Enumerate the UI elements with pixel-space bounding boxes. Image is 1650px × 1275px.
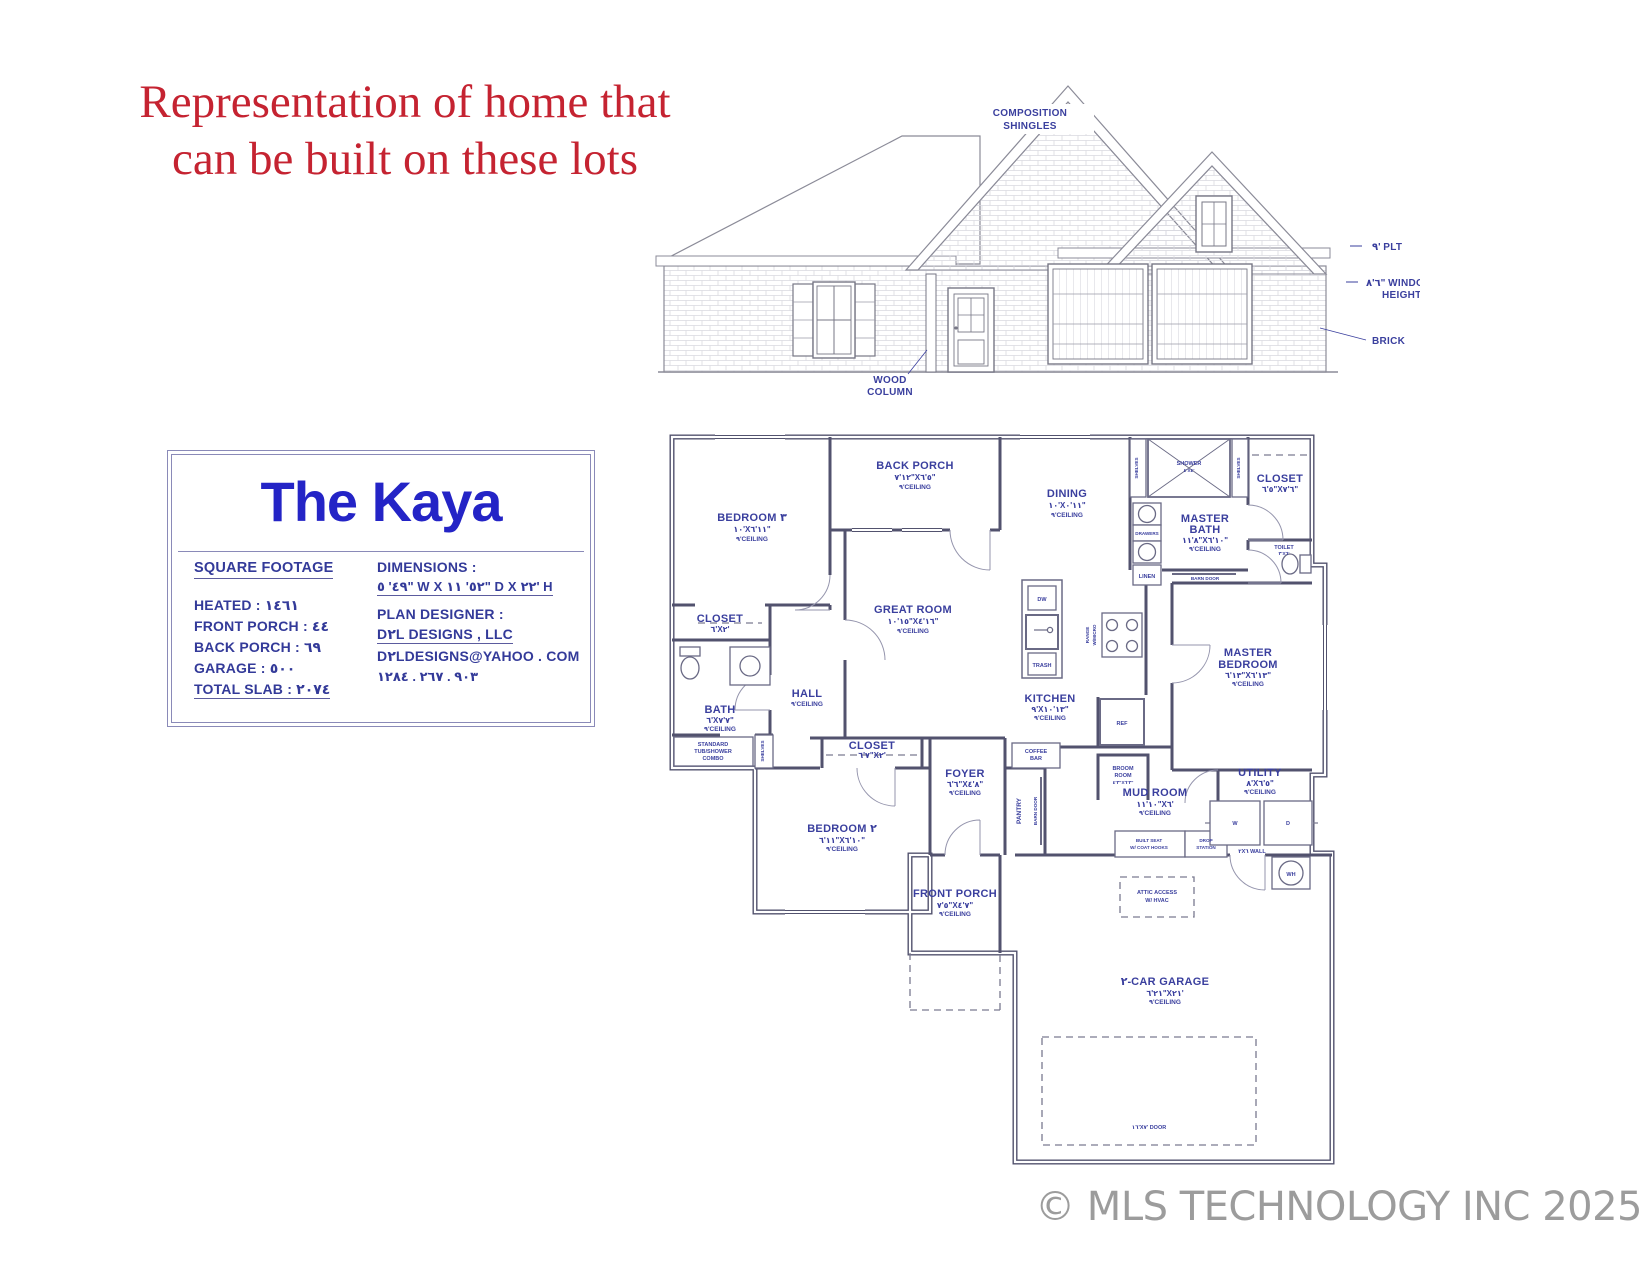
dashed-features bbox=[698, 455, 1318, 1145]
kitchen-label: KITCHEN bbox=[1025, 693, 1076, 705]
utility-label: UTILITY bbox=[1238, 767, 1282, 779]
svg-text:٧'٦"X٢': ٧'٦"X٢' bbox=[858, 751, 886, 760]
wood-column-label2: COLUMN bbox=[867, 387, 913, 398]
svg-text:COMBO: COMBO bbox=[702, 756, 724, 762]
svg-text:٩'CEILING: ٩'CEILING bbox=[939, 911, 971, 918]
plan-designer-heading: PLAN DESIGNER : bbox=[377, 606, 587, 622]
svg-text:٢'٤"X٢'٦": ٢'٤"X٢'٦" bbox=[1113, 780, 1134, 785]
wood-column-label: WOOD bbox=[873, 375, 906, 386]
hall-label: HALL bbox=[792, 688, 823, 700]
svg-text:٥'٧"X٧'٤": ٥'٧"X٧'٤" bbox=[937, 901, 974, 910]
svg-text:٩'CEILING: ٩'CEILING bbox=[826, 846, 858, 853]
plan-title-block: The Kaya SQUARE FOOTAGE HEATED : ١٤٦١ FR… bbox=[167, 450, 595, 727]
svg-text:٩'CEILING: ٩'CEILING bbox=[899, 484, 931, 491]
svg-text:٦'٦"X٨'٤": ٦'٦"X٨'٤" bbox=[947, 780, 984, 789]
svg-text:٩'X١٣'١٠": ٩'X١٣'١٠" bbox=[1031, 705, 1069, 714]
bedroom2-label: BEDROOM ٢ bbox=[807, 823, 877, 835]
svg-text:٩'CEILING: ٩'CEILING bbox=[1139, 810, 1171, 817]
tub-label: STANDARD bbox=[698, 742, 728, 748]
svg-text:٩'CEILING: ٩'CEILING bbox=[1189, 546, 1221, 553]
master-closet-label: CLOSET bbox=[1257, 473, 1303, 485]
dryer-label: D bbox=[1286, 821, 1290, 827]
svg-text:٩'CEILING: ٩'CEILING bbox=[1149, 999, 1181, 1006]
svg-text:٩'CEILING: ٩'CEILING bbox=[704, 726, 736, 733]
bath-label: BATH bbox=[705, 704, 736, 716]
svg-text:١٠'X١١'٠": ١٠'X١١'٠" bbox=[1048, 501, 1086, 510]
svg-text:١٥'١٠"X١٦'٤": ١٥'١٠"X١٦'٤" bbox=[888, 617, 939, 626]
svg-text:BEDROOM: BEDROOM bbox=[1218, 659, 1278, 671]
master-bedroom-label: MASTER bbox=[1224, 647, 1272, 659]
dishwasher-label: DW bbox=[1037, 597, 1047, 603]
great-room-label: GREAT ROOM bbox=[874, 604, 952, 616]
shower-label: SHOWER bbox=[1177, 461, 1202, 467]
plan-designer-email: D٢LDESIGNS@YAHOO . COM bbox=[377, 648, 587, 665]
svg-text:TUB/SHOWER: TUB/SHOWER bbox=[694, 749, 732, 755]
svg-text:٤'X٤': ٤'X٤' bbox=[1184, 468, 1195, 473]
svg-text:١١'٦"X١٠'٦": ١١'٦"X١٠'٦" bbox=[819, 836, 865, 845]
dimensions-column: DIMENSIONS : ٤٩' ٥" W X ٥٢' ١١" D X ٢٢' … bbox=[377, 559, 587, 685]
svg-text:١٣'٦"X١٣'٦": ١٣'٦"X١٣'٦" bbox=[1225, 671, 1271, 680]
front-porch-label: FRONT PORCH bbox=[913, 888, 997, 900]
front-porch-sqft: FRONT PORCH : ٤٤ bbox=[194, 618, 374, 635]
garage-door-label: ١٦'X٧' DOOR bbox=[1132, 1125, 1166, 1131]
svg-text:ROOM: ROOM bbox=[1114, 773, 1132, 779]
heated-sqft: HEATED : ١٤٦١ bbox=[194, 597, 374, 614]
floor-plan-drawing: BEDROOM ٣ ١٠'X١١'٦" ٩'CEILING BACK PORCH… bbox=[660, 425, 1340, 1165]
svg-text:W/ HVAC: W/ HVAC bbox=[1145, 898, 1168, 904]
trash-label: TRASH bbox=[1033, 663, 1052, 669]
svg-text:BAR: BAR bbox=[1030, 756, 1042, 762]
shelves-label-2: SHELVES bbox=[1134, 457, 1139, 478]
total-slab-sqft: TOTAL SLAB : ٢٠٧٤ bbox=[194, 681, 330, 699]
back-porch-label: BACK PORCH bbox=[876, 460, 954, 472]
brick-label: BRICK bbox=[1372, 336, 1406, 347]
svg-text:٩'CEILING: ٩'CEILING bbox=[1244, 789, 1276, 796]
range-label: RANGE bbox=[1085, 627, 1090, 644]
house-elevation-drawing: COMPOSITION SHINGLES WOOD COLUMN ٩' PLT … bbox=[650, 78, 1420, 408]
washer-label: W bbox=[1232, 821, 1238, 827]
garage-label: ٢-CAR GARAGE bbox=[1121, 976, 1210, 988]
attic-access-label: ATTIC ACCESS bbox=[1137, 890, 1177, 896]
dining-label: DINING bbox=[1047, 488, 1087, 500]
plan-designer-phone: ٩٠٣ . ٢٦٧ . ١٢٨٤ bbox=[377, 669, 587, 685]
dimensions-heading: DIMENSIONS : bbox=[377, 559, 587, 575]
svg-text:٦'X٧'٧": ٦'X٧'٧" bbox=[706, 716, 734, 725]
square-footage-column: SQUARE FOOTAGE HEATED : ١٤٦١ FRONT PORCH… bbox=[194, 559, 374, 699]
plan-name: The Kaya bbox=[172, 469, 590, 534]
dimensions-value: ٤٩' ٥" W X ٥٢' ١١" D X ٢٢' H bbox=[377, 579, 553, 596]
svg-text:٨'X٥'٦": ٨'X٥'٦" bbox=[1246, 779, 1274, 788]
svg-text:٩'CEILING: ٩'CEILING bbox=[1232, 681, 1264, 688]
drop-station-label: DROP bbox=[1199, 838, 1212, 843]
svg-text:STATION: STATION bbox=[1196, 845, 1216, 850]
window-height-label: ٦'٨" WINDOW bbox=[1366, 278, 1420, 289]
water-heater-label: WH bbox=[1286, 872, 1295, 878]
svg-text:٩'CEILING: ٩'CEILING bbox=[897, 628, 929, 635]
svg-text:١٠'١١"X٦': ١٠'١١"X٦' bbox=[1136, 800, 1173, 809]
shelves-label: SHELVES bbox=[760, 740, 765, 761]
linen-label: LINEN bbox=[1139, 574, 1156, 580]
mls-watermark: © MLS TECHNOLOGY INC 2025 bbox=[822, 1184, 1642, 1230]
svg-text:٥'٦"X٦'٧": ٥'٦"X٦'٧" bbox=[1262, 485, 1299, 494]
garage-sqft: GARAGE : ٥٠٠ bbox=[194, 660, 374, 677]
plan-title-block-inner: The Kaya SQUARE FOOTAGE HEATED : ١٤٦١ FR… bbox=[171, 454, 591, 723]
svg-text:٩'CEILING: ٩'CEILING bbox=[791, 701, 823, 708]
coffee-bar-label: COFFEE bbox=[1025, 749, 1048, 755]
composition-shingles-label2: SHINGLES bbox=[1003, 121, 1057, 132]
svg-text:٩'CEILING: ٩'CEILING bbox=[949, 790, 981, 797]
2x6-wall-label: ٢X٦ WALL bbox=[1238, 849, 1266, 855]
pantry-label: PANTRY bbox=[1016, 797, 1023, 824]
foyer-label: FOYER bbox=[945, 768, 984, 780]
shelves-label-3: SHELVES bbox=[1236, 457, 1241, 478]
back-porch-sqft: BACK PORCH : ٦٩ bbox=[194, 639, 374, 656]
svg-text:٨'١١"X١٠'٦": ٨'١١"X١٠'٦" bbox=[1182, 536, 1228, 545]
front-window bbox=[793, 282, 875, 358]
closet-bed3-label: CLOSET bbox=[697, 613, 743, 625]
fixtures bbox=[674, 439, 1312, 889]
svg-text:BATH: BATH bbox=[1190, 524, 1221, 536]
composition-shingles-label: COMPOSITION bbox=[993, 108, 1067, 119]
svg-text:W/ COAT HOOKS: W/ COAT HOOKS bbox=[1130, 845, 1168, 850]
broom-room-label: BROOM bbox=[1112, 766, 1134, 772]
barn-door-label: BARN DOOR bbox=[1191, 576, 1220, 581]
fixture-labels: STANDARD TUB/SHOWER COMBO SHELVES SHELVE… bbox=[694, 457, 1295, 1131]
svg-text:٣'X٦': ٣'X٦' bbox=[1279, 551, 1290, 556]
mud-room-label: MUD ROOM bbox=[1123, 787, 1188, 799]
refrigerator-label: REF bbox=[1117, 721, 1129, 727]
svg-text:١٠'X١١'٦": ١٠'X١١'٦" bbox=[733, 525, 771, 534]
exterior-walls bbox=[672, 437, 1332, 1162]
svg-text:٢١'٦"X٢١': ٢١'٦"X٢١' bbox=[1146, 989, 1183, 998]
built-seat-label: BUILT SEAT bbox=[1136, 838, 1163, 843]
gable-window bbox=[1196, 196, 1232, 252]
plan-designer-name: D٢L DESIGNS , LLC bbox=[377, 626, 513, 644]
square-footage-heading: SQUARE FOOTAGE bbox=[194, 560, 333, 579]
drawers-label: DRAWERS bbox=[1135, 531, 1158, 536]
front-door bbox=[926, 274, 994, 372]
svg-text:١٢'٧"X٥'٦": ١٢'٧"X٥'٦" bbox=[894, 473, 935, 482]
bedroom3-label: BEDROOM ٣ bbox=[717, 512, 787, 524]
plt-label: ٩' PLT bbox=[1372, 242, 1402, 253]
svg-text:٩'CEILING: ٩'CEILING bbox=[736, 536, 768, 543]
window-height-label2: HEIGHT bbox=[1382, 290, 1420, 301]
pantry-barn-door-label: BARN DOOR bbox=[1033, 796, 1038, 825]
svg-text:٦'X٢': ٦'X٢' bbox=[711, 625, 730, 634]
svg-text:٩'CEILING: ٩'CEILING bbox=[1034, 715, 1066, 722]
flyer-page: Representation of home that can be built… bbox=[0, 0, 1650, 1275]
divider bbox=[178, 551, 584, 552]
svg-text:W/MICRO: W/MICRO bbox=[1092, 624, 1097, 645]
svg-text:٩'CEILING: ٩'CEILING bbox=[1051, 512, 1083, 519]
